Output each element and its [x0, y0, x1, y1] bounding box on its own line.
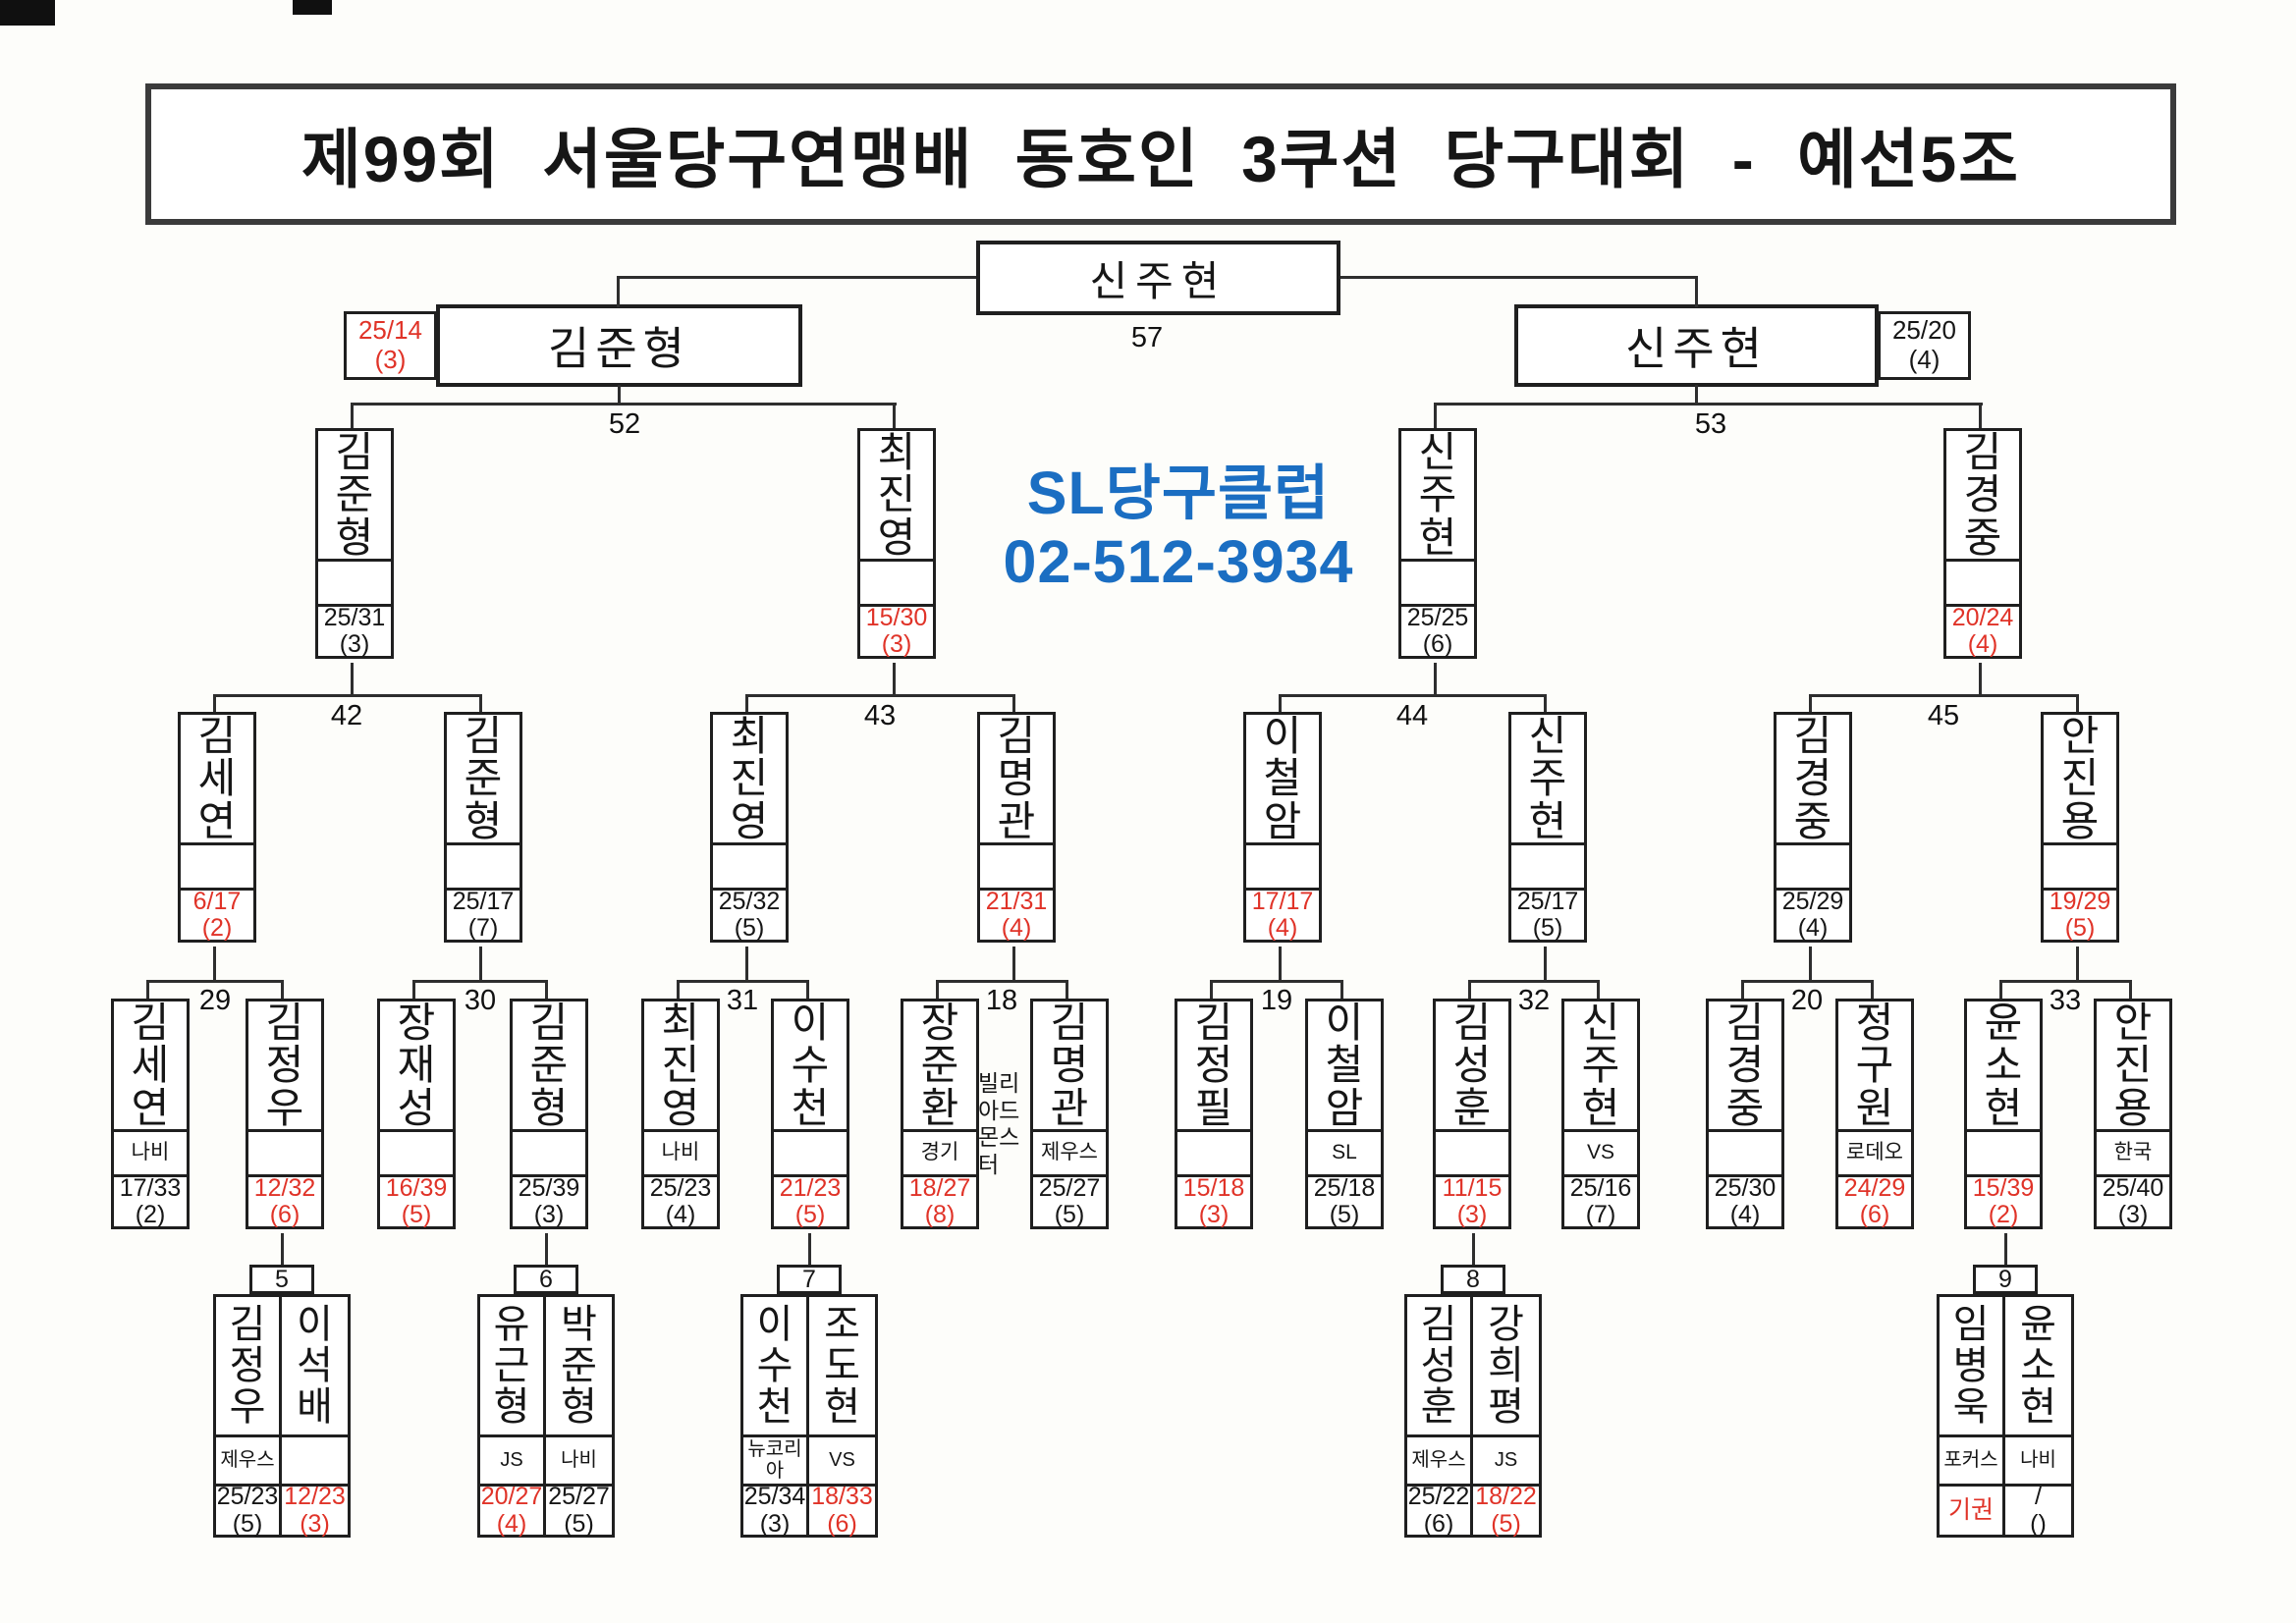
- connector-line: [1434, 403, 1437, 428]
- player-box: 김준형 25/39 (3): [510, 999, 588, 1229]
- player-box: 최진영 25/32 (5): [710, 712, 789, 943]
- player-name: 최진영: [644, 1001, 717, 1132]
- connector-line: [677, 980, 680, 999]
- connector-line: [1211, 980, 1341, 983]
- club-overflow-note: 빌리아드몬스터: [978, 1070, 1031, 1178]
- player-club: VS: [1564, 1132, 1637, 1177]
- connector-line: [1809, 694, 1812, 712]
- player-name: 김경중: [1777, 715, 1849, 845]
- player-name: 정구원: [1838, 1001, 1911, 1132]
- player-club: [1246, 845, 1319, 891]
- player-name: 윤소현: [2005, 1297, 2071, 1434]
- connector-line: [618, 385, 621, 405]
- scan-artifact: [293, 0, 332, 15]
- player-score: 15/30 (3): [860, 607, 933, 656]
- player-box: 장재성 16/39 (5): [377, 999, 456, 1229]
- connector-line: [2076, 947, 2079, 980]
- player-name: 윤소현: [1967, 1001, 2040, 1132]
- connector-line: [1012, 694, 1015, 712]
- player-column: 김정우 제우스 25/23 (5): [216, 1297, 282, 1535]
- player-score: 25/39 (3): [513, 1177, 585, 1226]
- player-club: SL: [1308, 1132, 1381, 1177]
- connector-line: [146, 980, 149, 999]
- connector-line: [281, 1233, 284, 1265]
- player-score: 25/18 (5): [1308, 1177, 1381, 1226]
- player-club: [1511, 845, 1584, 891]
- player-name: 김정필: [1177, 1001, 1250, 1132]
- connector-line: [351, 403, 354, 428]
- player-name: 이수천: [774, 1001, 847, 1132]
- connector-line: [1340, 980, 1343, 999]
- player-name: 김정우: [216, 1297, 279, 1434]
- pair-match-box: 김정우 제우스 25/23 (5) 이석배 12/23 (3): [213, 1294, 351, 1538]
- player-box: 이철암 SL 25/18 (5): [1305, 999, 1384, 1229]
- connector-line: [1810, 694, 2077, 697]
- match-number: 42: [331, 700, 362, 732]
- champion-box: 신주현: [976, 241, 1340, 315]
- connector-line: [617, 276, 620, 307]
- player-box: 윤소현 15/39 (2): [1964, 999, 2043, 1229]
- player-score: 18/27 (8): [903, 1177, 976, 1226]
- player-score: 19/29 (5): [2044, 891, 2116, 940]
- player-box: 안진용 19/29 (5): [2041, 712, 2119, 943]
- player-club: [774, 1132, 847, 1177]
- connector-line: [214, 694, 480, 697]
- player-score: 6/17 (2): [181, 891, 253, 940]
- player-box: 김준형 25/17 (7): [444, 712, 522, 943]
- pair-match-box: 임병욱 포커스 기권 윤소현 나비 / (): [1937, 1294, 2074, 1538]
- player-club: [318, 562, 391, 607]
- connector-line: [1544, 694, 1547, 712]
- scan-artifact: [0, 0, 55, 26]
- connector-line: [213, 694, 216, 712]
- player-score: 25/34 (3): [743, 1484, 806, 1535]
- connector-line: [1979, 403, 1982, 428]
- player-box: 이철암 17/17 (4): [1243, 712, 1322, 943]
- player-club: [860, 562, 933, 607]
- connector-line: [1809, 947, 1812, 980]
- connector-line: [2004, 1233, 2007, 1265]
- player-box: 최진영 나비 25/23 (4): [641, 999, 720, 1229]
- player-name: 김준형: [318, 431, 391, 562]
- player-name: 김성훈: [1407, 1297, 1470, 1434]
- player-club: [1967, 1132, 2040, 1177]
- connector-line: [2000, 980, 2130, 983]
- player-score: 17/33 (2): [114, 1177, 187, 1226]
- match-number-box: 9: [1973, 1265, 2038, 1294]
- player-club: [1709, 1132, 1781, 1177]
- player-box: 김정필 15/18 (3): [1175, 999, 1253, 1229]
- bracket-page: 제99회 서울당구연맹배 동호인 3쿠션 당구대회 - 예선5조 SL당구클럽 …: [0, 0, 2296, 1623]
- connector-line: [1066, 980, 1068, 999]
- player-box: 신주현 VS 25/16 (7): [1561, 999, 1640, 1229]
- connector-line: [1012, 947, 1015, 980]
- player-score: 16/39 (5): [380, 1177, 453, 1226]
- player-box: 김명관 21/31 (4): [977, 712, 1056, 943]
- connector-line: [745, 947, 748, 980]
- player-box: 김경중 25/30 (4): [1706, 999, 1784, 1229]
- connector-line: [1544, 947, 1547, 980]
- connector-line: [1280, 694, 1545, 697]
- player-score: 11/15 (3): [1436, 1177, 1508, 1226]
- player-column: 이석배 12/23 (3): [282, 1297, 348, 1535]
- player-score: 15/18 (3): [1177, 1177, 1250, 1226]
- player-name: 신주현: [1564, 1001, 1637, 1132]
- connector-line: [1695, 276, 1698, 307]
- player-column: 이수천 뉴코리아 25/34 (3): [743, 1297, 809, 1535]
- player-box: 김명관 제우스 25/27 (5): [1030, 999, 1109, 1229]
- connector-line: [1469, 980, 1598, 983]
- connector-line: [1871, 980, 1874, 999]
- player-name: 안진용: [2044, 715, 2116, 845]
- player-score: 25/31 (3): [318, 607, 391, 656]
- player-score: 기권: [1940, 1484, 2002, 1535]
- player-box: 신주현 25/25 (6): [1398, 428, 1477, 659]
- match-number: 44: [1396, 700, 1428, 732]
- connector-line: [1472, 1233, 1475, 1265]
- player-box: 김성훈 11/15 (3): [1433, 999, 1511, 1229]
- match-number: 18: [986, 985, 1017, 1017]
- player-box: 김세연 6/17 (2): [178, 712, 256, 943]
- player-name: 이석배: [282, 1297, 348, 1434]
- tournament-title: 제99회 서울당구연맹배 동호인 3쿠션 당구대회 - 예선5조: [145, 83, 2176, 225]
- connector-line: [1999, 980, 2002, 999]
- connector-line: [1434, 663, 1437, 694]
- match-number: 31: [727, 985, 758, 1017]
- player-score: 20/27 (4): [480, 1484, 543, 1535]
- connector-line: [1468, 980, 1471, 999]
- connector-line: [893, 663, 896, 694]
- player-name: 김정우: [248, 1001, 321, 1132]
- player-club: [282, 1434, 348, 1484]
- player-club: [1436, 1132, 1508, 1177]
- player-box: 김준형 25/31 (3): [315, 428, 394, 659]
- match-number: 20: [1791, 985, 1823, 1017]
- player-box: 김경중 25/29 (4): [1774, 712, 1852, 943]
- player-name: 최진영: [713, 715, 786, 845]
- match-number: 19: [1261, 985, 1292, 1017]
- match-number-box: 7: [777, 1265, 842, 1294]
- player-name: 김세연: [181, 715, 253, 845]
- player-score: 12/32 (6): [248, 1177, 321, 1226]
- player-club: [513, 1132, 585, 1177]
- connector-line: [1435, 403, 1983, 406]
- player-name: 신주현: [1401, 431, 1474, 562]
- player-box: 김경중 20/24 (4): [1943, 428, 2022, 659]
- pair-match-box: 김성훈 제우스 25/22 (6) 강희평 JS 18/22 (5): [1404, 1294, 1542, 1538]
- player-score: 25/29 (4): [1777, 891, 1849, 940]
- connector-line: [479, 694, 482, 712]
- player-box: 이수천 21/23 (5): [771, 999, 849, 1229]
- player-score: 25/32 (5): [713, 891, 786, 940]
- match-number: 32: [1518, 985, 1550, 1017]
- score-line: 25/14: [358, 316, 422, 346]
- player-box: 신주현 25/17 (5): [1508, 712, 1587, 943]
- player-score: 15/39 (2): [1967, 1177, 2040, 1226]
- player-club: VS: [809, 1434, 875, 1484]
- player-name: 유근형: [480, 1297, 543, 1434]
- player-club: JS: [480, 1434, 543, 1484]
- innings-line: (3): [375, 346, 407, 375]
- player-club: [248, 1132, 321, 1177]
- innings-line: (4): [1909, 346, 1941, 375]
- player-name: 이수천: [743, 1297, 806, 1434]
- match-number: 33: [2050, 985, 2081, 1017]
- player-club: JS: [1473, 1434, 1539, 1484]
- player-column: 김성훈 제우스 25/22 (6): [1407, 1297, 1473, 1535]
- player-name: 김명관: [1033, 1001, 1106, 1132]
- score-line: 25/20: [1892, 316, 1956, 346]
- connector-line: [1279, 947, 1282, 980]
- connector-line: [806, 980, 809, 999]
- player-column: 박준형 나비 25/27 (5): [546, 1297, 612, 1535]
- connector-line: [2076, 694, 2079, 712]
- player-column: 조도현 VS 18/33 (6): [809, 1297, 875, 1535]
- match-number: 52: [609, 408, 640, 441]
- player-box: 최진영 15/30 (3): [857, 428, 936, 659]
- player-name: 장재성: [380, 1001, 453, 1132]
- player-club: 나비: [644, 1132, 717, 1177]
- player-club: 포커스: [1940, 1434, 2002, 1484]
- match-number: 53: [1695, 408, 1726, 441]
- player-club: [181, 845, 253, 891]
- player-name: 김준형: [447, 715, 519, 845]
- connector-line: [808, 1233, 811, 1265]
- connector-line: [281, 980, 284, 999]
- match-number-box: 6: [514, 1265, 578, 1294]
- player-column: 강희평 JS 18/22 (5): [1473, 1297, 1539, 1535]
- player-name: 강희평: [1473, 1297, 1539, 1434]
- connector-line: [352, 403, 897, 406]
- connector-line: [1340, 276, 1696, 279]
- connector-line: [1695, 385, 1698, 405]
- connector-line: [545, 980, 548, 999]
- player-club: [2044, 845, 2116, 891]
- player-name: 장준환: [903, 1001, 976, 1132]
- finalist-score-box: 25/20 (4): [1878, 311, 1971, 380]
- player-name: 김경중: [1946, 431, 2019, 562]
- player-score: 20/24 (4): [1946, 607, 2019, 656]
- player-box: 정구원 로데오 24/29 (6): [1835, 999, 1914, 1229]
- player-name: 김명관: [980, 715, 1053, 845]
- connector-line: [1597, 980, 1600, 999]
- player-name: 김준형: [513, 1001, 585, 1132]
- player-club: 나비: [546, 1434, 612, 1484]
- player-column: 윤소현 나비 / (): [2005, 1297, 2071, 1535]
- player-score: 25/27 (5): [546, 1484, 612, 1535]
- player-score: 18/22 (5): [1473, 1484, 1539, 1535]
- player-name: 이철암: [1246, 715, 1319, 845]
- player-club: [980, 845, 1053, 891]
- player-name: 신주현: [1511, 715, 1584, 845]
- player-club: [1777, 845, 1849, 891]
- player-club: 경기: [903, 1132, 976, 1177]
- player-name: 이철암: [1308, 1001, 1381, 1132]
- player-club: 제우스: [1407, 1434, 1470, 1484]
- player-name: 조도현: [809, 1297, 875, 1434]
- player-box: 안진용 한국 25/40 (3): [2094, 999, 2172, 1229]
- connector-line: [936, 980, 939, 999]
- sponsor-name: SL당구클럽: [925, 460, 1432, 528]
- player-club: 로데오: [1838, 1132, 1911, 1177]
- player-score: 25/25 (6): [1401, 607, 1474, 656]
- player-score: 21/31 (4): [980, 891, 1053, 940]
- match-number-box: 5: [249, 1265, 314, 1294]
- connector-line: [893, 403, 896, 428]
- player-box: 김세연 나비 17/33 (2): [111, 999, 190, 1229]
- player-score: 25/17 (7): [447, 891, 519, 940]
- match-number: 45: [1928, 700, 1959, 732]
- player-club: [1177, 1132, 1250, 1177]
- connector-line: [413, 980, 546, 983]
- sponsor-phone: 02-512-3934: [925, 528, 1432, 597]
- player-score: 24/29 (6): [1838, 1177, 1911, 1226]
- player-score: 17/17 (4): [1246, 891, 1319, 940]
- player-club: 제우스: [1033, 1132, 1106, 1177]
- connector-line: [351, 663, 354, 694]
- player-club: [447, 845, 519, 891]
- match-number: 29: [199, 985, 231, 1017]
- player-club: 나비: [2005, 1434, 2071, 1484]
- connector-line: [617, 276, 976, 279]
- connector-line: [1979, 663, 1982, 694]
- connector-line: [545, 1233, 548, 1265]
- player-box: 김정우 12/32 (6): [246, 999, 324, 1229]
- player-box: 장준환 경기 18/27 (8): [901, 999, 979, 1229]
- connector-line: [745, 694, 748, 712]
- player-club: 제우스: [216, 1434, 279, 1484]
- connector-line: [1741, 980, 1744, 999]
- player-score: / (): [2005, 1484, 2071, 1535]
- connector-line: [412, 980, 415, 999]
- player-club: 나비: [114, 1132, 187, 1177]
- finalist-name-box: 신주현: [1514, 304, 1879, 387]
- player-score: 18/33 (6): [809, 1484, 875, 1535]
- connector-line: [1742, 980, 1872, 983]
- connector-line: [1279, 694, 1282, 712]
- player-club: [1946, 562, 2019, 607]
- player-column: 유근형 JS 20/27 (4): [480, 1297, 546, 1535]
- player-name: 김경중: [1709, 1001, 1781, 1132]
- player-score: 12/23 (3): [282, 1484, 348, 1535]
- player-club: 뉴코리아: [743, 1434, 806, 1484]
- pair-match-box: 유근형 JS 20/27 (4) 박준형 나비 25/27 (5): [477, 1294, 615, 1538]
- sponsor-ad: SL당구클럽 02-512-3934: [925, 460, 1432, 596]
- connector-line: [937, 980, 1066, 983]
- player-club: [380, 1132, 453, 1177]
- player-name: 안진용: [2097, 1001, 2169, 1132]
- player-score: 25/27 (5): [1033, 1177, 1106, 1226]
- player-column: 임병욱 포커스 기권: [1940, 1297, 2005, 1535]
- player-score: 25/17 (5): [1511, 891, 1584, 940]
- player-score: 25/22 (6): [1407, 1484, 1470, 1535]
- connector-line: [678, 980, 807, 983]
- player-score: 25/16 (7): [1564, 1177, 1637, 1226]
- match-number: 30: [465, 985, 496, 1017]
- player-name: 박준형: [546, 1297, 612, 1434]
- match-number-box: 8: [1441, 1265, 1505, 1294]
- player-club: [713, 845, 786, 891]
- connector-line: [479, 947, 482, 980]
- pair-match-box: 이수천 뉴코리아 25/34 (3) 조도현 VS 18/33 (6): [740, 1294, 878, 1538]
- connector-line: [746, 694, 1013, 697]
- player-name: 최진영: [860, 431, 933, 562]
- player-name: 김성훈: [1436, 1001, 1508, 1132]
- finalist-score-box: 25/14 (3): [344, 311, 437, 380]
- connector-line: [1210, 980, 1213, 999]
- player-club: [1401, 562, 1474, 607]
- player-score: 25/23 (4): [644, 1177, 717, 1226]
- player-score: 25/30 (4): [1709, 1177, 1781, 1226]
- connector-line: [2129, 980, 2132, 999]
- connector-line: [147, 980, 282, 983]
- player-score: 21/23 (5): [774, 1177, 847, 1226]
- finalist-name-box: 김준형: [436, 304, 802, 387]
- match-number: 57: [1131, 322, 1163, 354]
- connector-line: [213, 947, 216, 980]
- player-score: 25/23 (5): [216, 1484, 279, 1535]
- player-name: 임병욱: [1940, 1297, 2002, 1434]
- match-number: 43: [864, 700, 896, 732]
- player-club: 한국: [2097, 1132, 2169, 1177]
- player-name: 김세연: [114, 1001, 187, 1132]
- player-score: 25/40 (3): [2097, 1177, 2169, 1226]
